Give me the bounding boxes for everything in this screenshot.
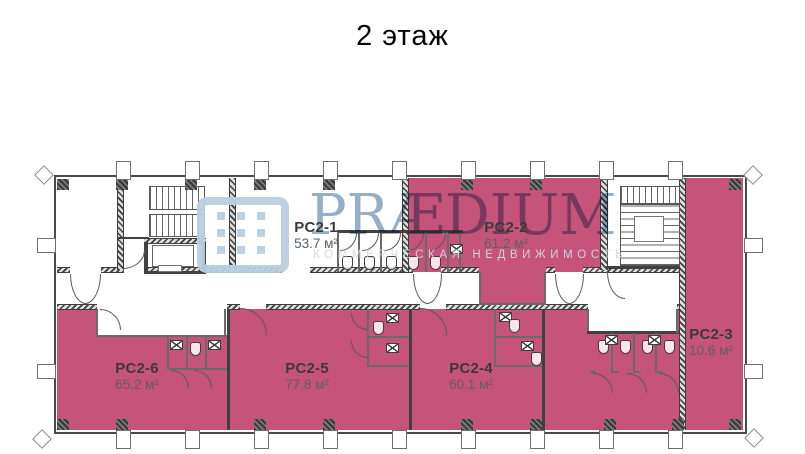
room-label-pc2-2[interactable]: PC2-2 61.2 м² (484, 219, 528, 252)
column-stub (461, 161, 476, 180)
wall (57, 267, 70, 273)
stairs (620, 186, 680, 204)
column (729, 179, 741, 190)
room-area: 61.2 м² (484, 236, 528, 252)
column-stub (37, 238, 56, 253)
sink-icon (386, 343, 399, 353)
wall (635, 371, 641, 373)
logo-dot-icon (217, 246, 225, 254)
column (604, 419, 616, 430)
column (116, 419, 128, 430)
column-stub (668, 161, 683, 180)
sink-icon (605, 335, 618, 345)
sink-icon (208, 340, 221, 350)
sink-icon (648, 335, 661, 345)
toilet-icon (509, 319, 520, 333)
room-label-pc2-6[interactable]: PC2-6 65.2 м² (115, 360, 159, 393)
column-stub (392, 430, 407, 449)
corridor-extension (588, 309, 677, 333)
logo-dot-icon (217, 212, 225, 220)
wall (587, 309, 589, 333)
wall (167, 337, 169, 370)
room-area: 53.7 м² (294, 236, 338, 252)
room-label-pc2-3[interactable]: PC2-3 10.6 м² (689, 326, 733, 359)
room-name: PC2-6 (115, 360, 159, 377)
axis-marker (34, 165, 54, 185)
column (672, 419, 684, 430)
logo-dot-icon (237, 229, 245, 237)
wall (186, 337, 188, 370)
wall (544, 272, 546, 305)
column-stub (461, 430, 476, 449)
room-area: 10.6 м² (689, 343, 733, 359)
floor-plan-page: 2 этаж (0, 0, 805, 454)
column (57, 179, 69, 190)
column-stub (530, 161, 545, 180)
wall (266, 304, 420, 310)
axis-marker (744, 428, 764, 448)
wall (57, 304, 97, 310)
watermark-tagline: КОММЕРЧЕСКАЯ НЕДВИЖИМОСТЬ (313, 249, 627, 261)
wall (494, 336, 542, 338)
wall (633, 333, 635, 373)
wall (310, 267, 413, 273)
wall (676, 309, 678, 333)
page-title: 2 этаж (0, 20, 805, 53)
elevator-door (158, 265, 182, 272)
room-name: PC2-2 (484, 219, 528, 236)
room-pc2-2-extension[interactable] (480, 272, 545, 305)
logo-dot-icon (257, 212, 265, 220)
elevator-car (152, 245, 194, 267)
logo-dot-icon (217, 229, 225, 237)
wall (367, 336, 409, 338)
column (116, 179, 128, 190)
room-name: PC2-3 (689, 326, 733, 343)
toilet-icon (664, 340, 675, 354)
column-stub (185, 430, 200, 449)
wall (144, 242, 148, 273)
column-stub (744, 238, 763, 253)
logo-dot-icon (257, 229, 265, 237)
wall (409, 309, 412, 430)
column-stub (116, 430, 131, 449)
column-stub (116, 161, 131, 180)
toilet-icon (531, 352, 542, 366)
room-name: PC2-5 (285, 360, 329, 377)
column-stub (599, 430, 614, 449)
wall (546, 267, 555, 273)
column (185, 179, 197, 190)
stair-landing (634, 216, 664, 242)
column (254, 179, 266, 190)
room-name: PC2-1 (294, 219, 338, 236)
wall (494, 309, 496, 367)
column (530, 419, 542, 430)
logo-dot-icon (237, 212, 245, 220)
column-stub (323, 430, 338, 449)
column (729, 419, 741, 430)
wall (606, 266, 680, 269)
column-stub (254, 161, 269, 180)
room-area: 60.1 м² (449, 377, 493, 393)
wall (479, 272, 481, 305)
wall (205, 337, 207, 370)
column-stub (185, 161, 200, 180)
logo-dot-icon (237, 246, 245, 254)
column-stub (744, 364, 763, 379)
room-area: 77.8 м² (285, 377, 329, 393)
sink-icon (521, 341, 534, 351)
room-area: 65.2 м² (115, 377, 159, 393)
wall (446, 304, 588, 310)
column-stub (323, 161, 338, 180)
sink-icon (386, 313, 399, 323)
column-stub (530, 430, 545, 449)
column (461, 419, 473, 430)
column-stub (37, 364, 56, 379)
toilet-icon (620, 340, 631, 354)
room-name: PC2-4 (449, 360, 493, 377)
wall (613, 371, 619, 373)
sink-icon (170, 340, 183, 350)
toilet-icon (190, 342, 201, 356)
room-label-pc2-1[interactable]: PC2-1 53.7 м² (294, 219, 338, 252)
column (254, 419, 266, 430)
column (57, 419, 69, 430)
column-stub (392, 161, 407, 180)
wall (96, 309, 98, 337)
wall (224, 309, 226, 337)
column-stub (668, 430, 683, 449)
column-stub (254, 430, 269, 449)
column-stub (599, 161, 614, 180)
wall (542, 309, 545, 430)
room-label-pc2-5[interactable]: PC2-5 77.8 м² (285, 360, 329, 393)
room-label-pc2-4[interactable]: PC2-4 60.1 м² (449, 360, 493, 393)
logo-dot-icon (257, 246, 265, 254)
toilet-icon (373, 321, 384, 335)
axis-marker (32, 429, 52, 449)
watermark-brand: PRÆDIUM (309, 188, 616, 244)
wall (367, 365, 409, 367)
wall (227, 309, 230, 430)
wall (679, 178, 686, 430)
wall (96, 335, 227, 337)
wall (479, 303, 546, 305)
column (323, 419, 335, 430)
